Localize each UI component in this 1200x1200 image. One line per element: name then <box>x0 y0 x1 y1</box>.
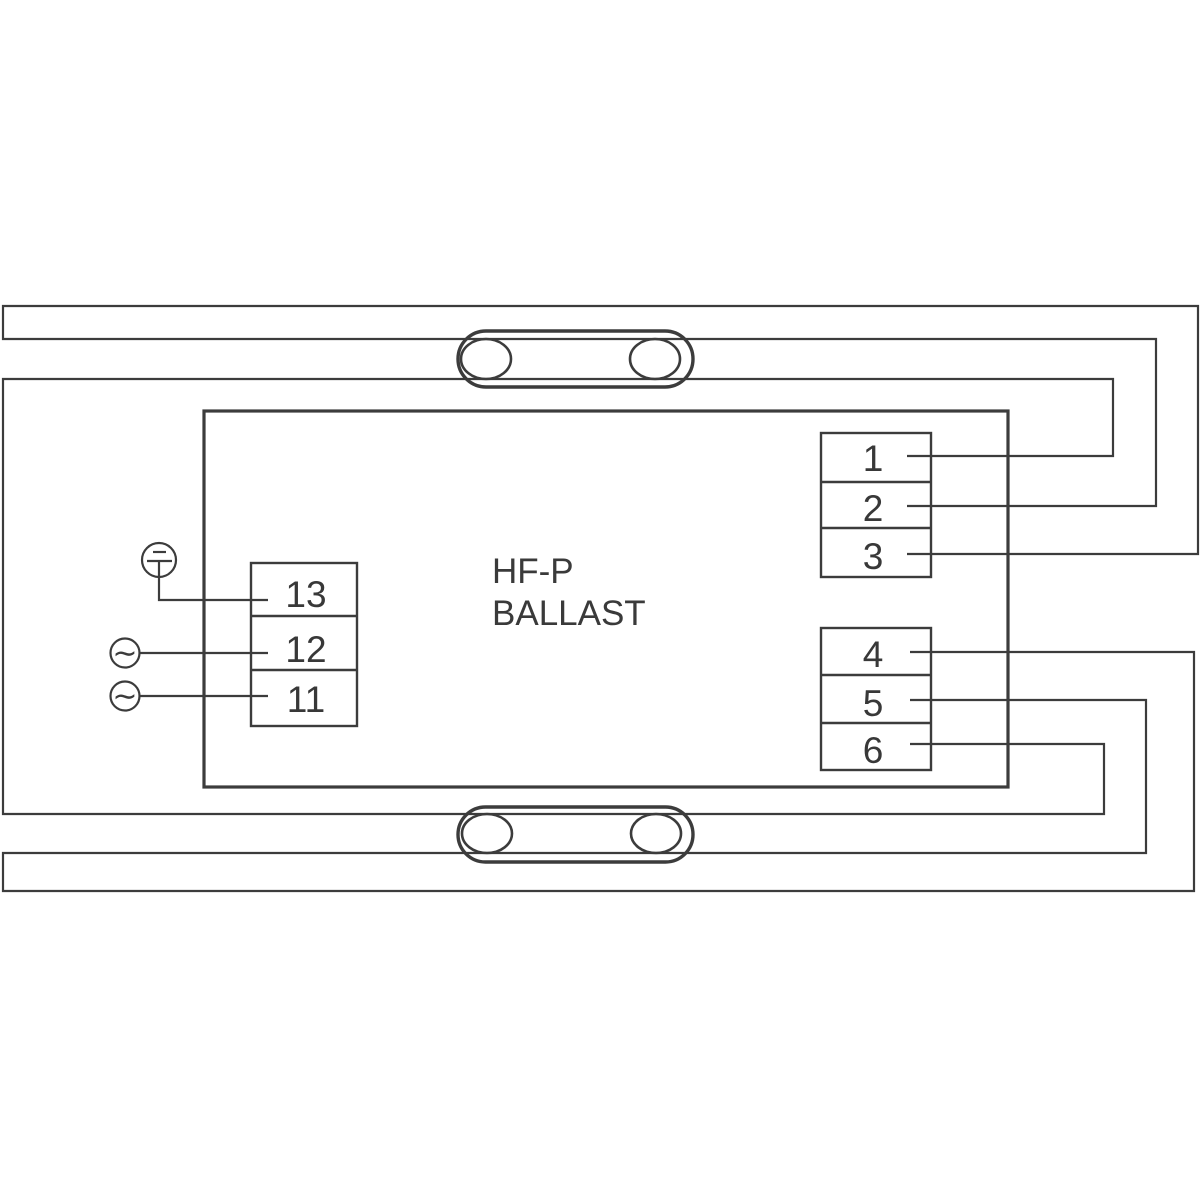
terminal-4-label: 4 <box>863 634 884 675</box>
lamp-top-left-filament <box>461 339 511 379</box>
ballast-title: HF-P BALLAST <box>492 552 646 633</box>
lamp-bottom-right-filament <box>631 814 681 853</box>
lamp-bottom-left-filament <box>462 814 512 853</box>
lamp-top-right-filament <box>630 339 680 379</box>
terminal-6-label: 6 <box>863 730 884 771</box>
terminal-11-label: 11 <box>287 679 325 720</box>
terminal-block-left: 13 12 11 <box>251 563 357 726</box>
ac-source-2-tilde: ∼ <box>112 679 137 714</box>
ac-source-icon-2: ∼ <box>111 679 140 714</box>
terminal-5-label: 5 <box>863 683 884 724</box>
terminal-2-label: 2 <box>863 488 884 529</box>
ballast-title-line1: HF-P <box>492 552 574 591</box>
terminal-13-label: 13 <box>285 574 326 615</box>
ballast-wiring-diagram: 13 12 11 1 2 3 4 5 6 <box>0 0 1200 1200</box>
ac-source-1-tilde: ∼ <box>112 636 137 671</box>
wire-terminal3-top-loop-terminal2 <box>3 306 1198 554</box>
wiring-diagram-page: 13 12 11 1 2 3 4 5 6 <box>0 0 1200 1200</box>
ac-source-icon-1: ∼ <box>111 636 140 671</box>
terminal-3-label: 3 <box>863 536 884 577</box>
ballast-title-line2: BALLAST <box>492 594 646 633</box>
wire-terminal5-bottom-loop-terminal4 <box>3 652 1194 891</box>
terminal-1-label: 1 <box>863 438 884 479</box>
terminal-12-label: 12 <box>285 629 326 670</box>
